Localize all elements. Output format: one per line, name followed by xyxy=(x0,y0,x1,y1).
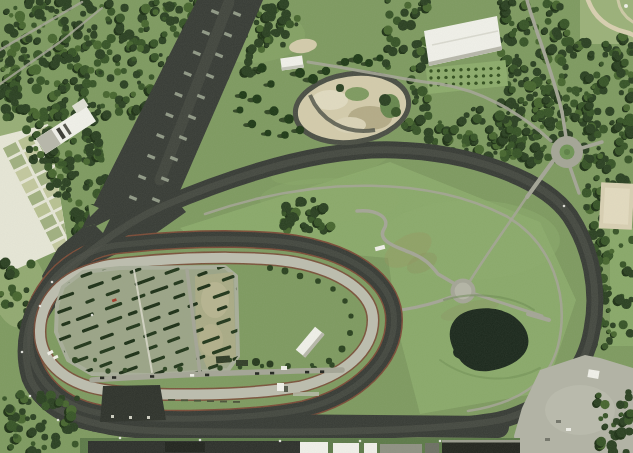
photo-grain xyxy=(0,0,633,453)
satellite-photo xyxy=(0,0,633,453)
racetrack-aerial-scene xyxy=(0,0,633,453)
